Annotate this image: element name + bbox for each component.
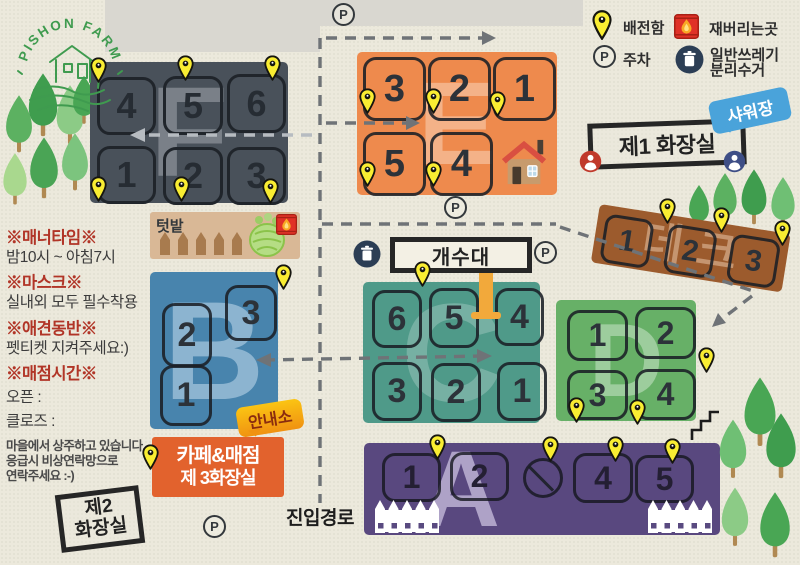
pin-d4	[629, 399, 646, 425]
notice-store-title: ※매점시간※	[6, 360, 97, 384]
pin-cafe	[142, 444, 159, 470]
trash-station-icon	[353, 240, 381, 268]
site-a2: 2	[450, 452, 509, 501]
house-icon	[500, 136, 548, 188]
pin-e2	[425, 88, 442, 114]
cafe-box: 카페&매점 제 3화장실	[152, 437, 284, 497]
pin-b	[275, 264, 292, 290]
site-f6: 6	[227, 74, 286, 133]
legend-parking-icon: P	[593, 45, 616, 68]
pin-f4	[90, 57, 107, 83]
legend-pin-label: 배전함	[623, 17, 664, 38]
pin-a4	[607, 436, 624, 462]
pin-e5	[359, 161, 376, 187]
site-c4: 4	[495, 288, 544, 346]
no-site-marker	[523, 458, 563, 498]
site-d2: 2	[635, 307, 696, 359]
pin-e4	[425, 161, 442, 187]
pin-f2	[173, 176, 190, 202]
pin-e3	[359, 88, 376, 114]
zone-e-block: E 3 2 1 5 4	[357, 52, 557, 195]
zone-c-block: C 6 5 4 3 2 1	[363, 282, 540, 423]
notice-store-open: 오픈 :	[6, 385, 41, 407]
logo-text: PISHON FARM	[16, 16, 125, 63]
restroom3-label: 제 3화장실	[180, 468, 255, 489]
site-b1: 1	[160, 365, 212, 426]
legend-pin-icon	[592, 10, 612, 40]
site-a1: 1	[382, 453, 441, 502]
legend-fire-label: 재버리는곳	[709, 18, 778, 39]
pin-f1	[90, 176, 107, 202]
pin-a1	[429, 434, 446, 460]
fence-left	[374, 498, 440, 534]
site-c2: 2	[431, 363, 481, 422]
site-a4: 4	[573, 453, 633, 503]
sink-connector	[479, 271, 493, 318]
restroom2-label-line2: 화장실	[74, 516, 129, 543]
site-f2: 2	[163, 147, 223, 205]
svg-text:PISHON FARM: PISHON FARM	[16, 16, 125, 63]
pin-f5	[177, 55, 194, 81]
restroom2-box: 제2 화장실	[55, 485, 145, 553]
shower-bubble: 샤워장	[707, 86, 792, 135]
site-deck2: 2	[662, 223, 718, 279]
site-b2: 2	[162, 303, 212, 367]
parking-circle-bottom: P	[203, 515, 226, 538]
pin-deck2	[713, 207, 730, 233]
pin-f6	[264, 55, 281, 81]
fence-right	[647, 498, 713, 534]
site-c1: 1	[497, 362, 547, 421]
legend-fire-icon	[674, 14, 699, 39]
pin-d3	[568, 397, 585, 423]
cafe-label: 카페&매점	[176, 445, 259, 468]
legend-trash-label-line2: 분리수거	[710, 59, 765, 80]
pin-deck3	[774, 220, 791, 246]
pin-f3	[262, 178, 279, 204]
legend-parking-label: 주차	[623, 49, 651, 70]
garden-box: 텃밭	[150, 212, 300, 259]
shower-label: 샤워장	[724, 93, 775, 127]
notice-manner-body: 밤10시 ~ 아침7시	[6, 245, 115, 267]
sink-label: 개수대	[432, 241, 490, 270]
route-into-d	[718, 296, 752, 322]
site-d1: 1	[567, 310, 628, 361]
parking-circle-top: P	[332, 3, 355, 26]
site-c3: 3	[372, 362, 422, 421]
pin-a2	[542, 436, 559, 462]
info-label: 안내소	[246, 403, 293, 434]
entry-route-label: 진입경로	[286, 503, 354, 530]
pin-e1	[489, 91, 506, 117]
ash-disposal-icon	[276, 214, 297, 235]
restroom-person-red-icon	[579, 150, 602, 173]
sink-box: 개수대	[390, 237, 532, 273]
pin-deck1	[659, 198, 676, 224]
site-deck1: 1	[599, 213, 655, 269]
site-f5: 5	[163, 76, 223, 135]
garden-label: 텃밭	[156, 215, 184, 236]
legend-trash-icon	[675, 45, 704, 74]
restroom1-label: 제1 화장실	[618, 126, 715, 161]
road-top-right	[320, 0, 583, 26]
notice-pet-body: 펫티켓 지켜주세요:)	[6, 336, 128, 358]
road-top-left	[105, 0, 320, 52]
site-c6: 6	[372, 290, 422, 348]
parking-circle-mid: P	[444, 196, 467, 219]
pishon-farm-logo: PISHON FARM	[14, 6, 126, 121]
sink-connector-cap	[471, 312, 501, 319]
pin-a5	[664, 438, 681, 464]
pin-d-right	[698, 347, 715, 373]
campground-map: PISHON FARM	[0, 0, 800, 565]
tree-cluster-bottom-right	[714, 376, 800, 565]
notice-mask-body: 실내외 모두 필수착용	[6, 290, 137, 312]
notice-store-close: 클로즈 :	[6, 409, 55, 431]
notice-footer-line3: 연락주세요 :-)	[6, 465, 74, 484]
pin-c	[414, 261, 431, 287]
parking-circle-sink: P	[534, 241, 557, 264]
restroom-person-blue-icon	[723, 150, 746, 173]
site-b3: 3	[225, 285, 277, 341]
